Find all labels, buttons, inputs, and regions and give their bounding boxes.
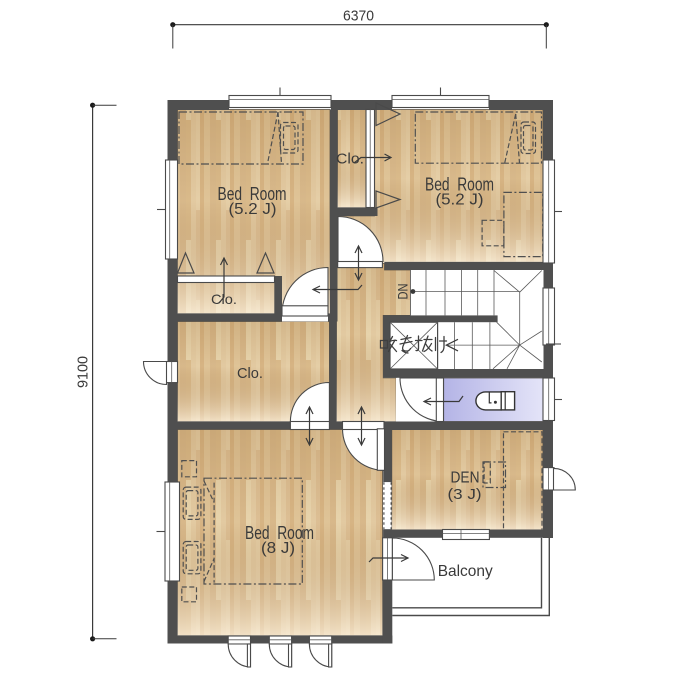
svg-text:DEN: DEN bbox=[451, 470, 480, 487]
svg-text:DN: DN bbox=[395, 284, 411, 300]
svg-text:Balcony: Balcony bbox=[438, 563, 493, 580]
svg-text:Clo.: Clo. bbox=[237, 365, 263, 382]
svg-text:Clo.: Clo. bbox=[211, 291, 237, 307]
svg-text:6370: 6370 bbox=[343, 8, 374, 25]
svg-text:(3 J): (3 J) bbox=[448, 486, 482, 503]
svg-text:Clo.: Clo. bbox=[336, 151, 364, 168]
svg-text:(5.2 J): (5.2 J) bbox=[436, 192, 484, 209]
svg-text:(8 J): (8 J) bbox=[261, 540, 295, 557]
svg-text:(5.2 J): (5.2 J) bbox=[229, 201, 277, 218]
svg-text:9100: 9100 bbox=[75, 356, 92, 388]
